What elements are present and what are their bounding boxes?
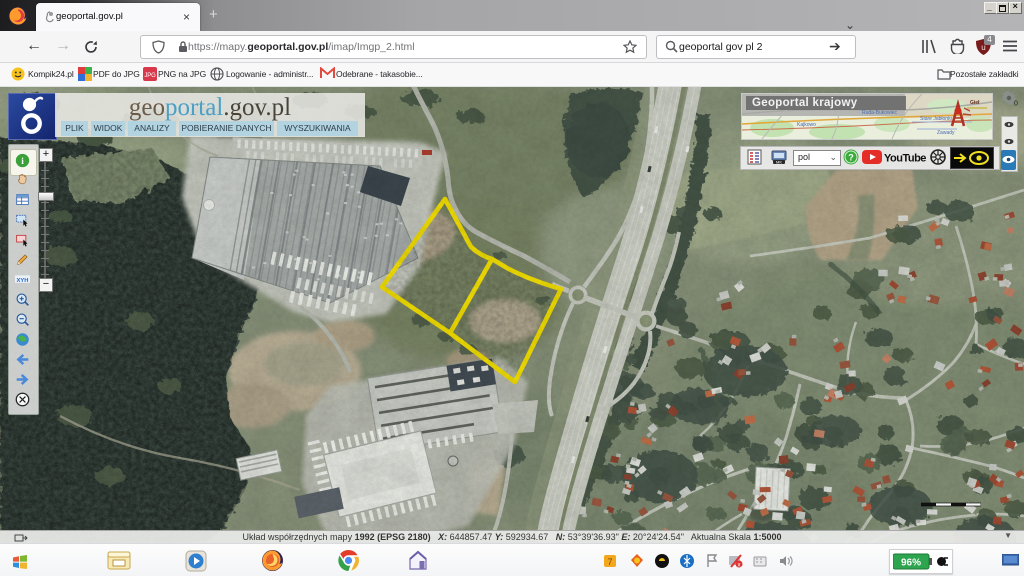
svg-text:x: x bbox=[738, 562, 741, 568]
svg-text:0: 0 bbox=[1014, 101, 1018, 107]
svg-text:7: 7 bbox=[607, 557, 612, 567]
svg-text:JPG: JPG bbox=[144, 73, 156, 79]
svg-text:YouTube: YouTube bbox=[884, 153, 926, 165]
svg-text:XYH: XYH bbox=[17, 278, 29, 284]
svg-text:Ruda-Bukowiec: Ruda-Bukowiec bbox=[862, 110, 898, 116]
svg-text:Stare Jabłonki: Stare Jabłonki bbox=[920, 116, 952, 122]
svg-text:Gieł: Gieł bbox=[970, 100, 980, 106]
svg-text:MK: MK bbox=[776, 160, 782, 165]
svg-text:96%: 96% bbox=[901, 558, 921, 569]
svg-text:Kajkowo: Kajkowo bbox=[797, 122, 816, 128]
svg-text:?: ? bbox=[848, 153, 854, 163]
svg-text:Zawady: Zawady bbox=[937, 130, 955, 136]
